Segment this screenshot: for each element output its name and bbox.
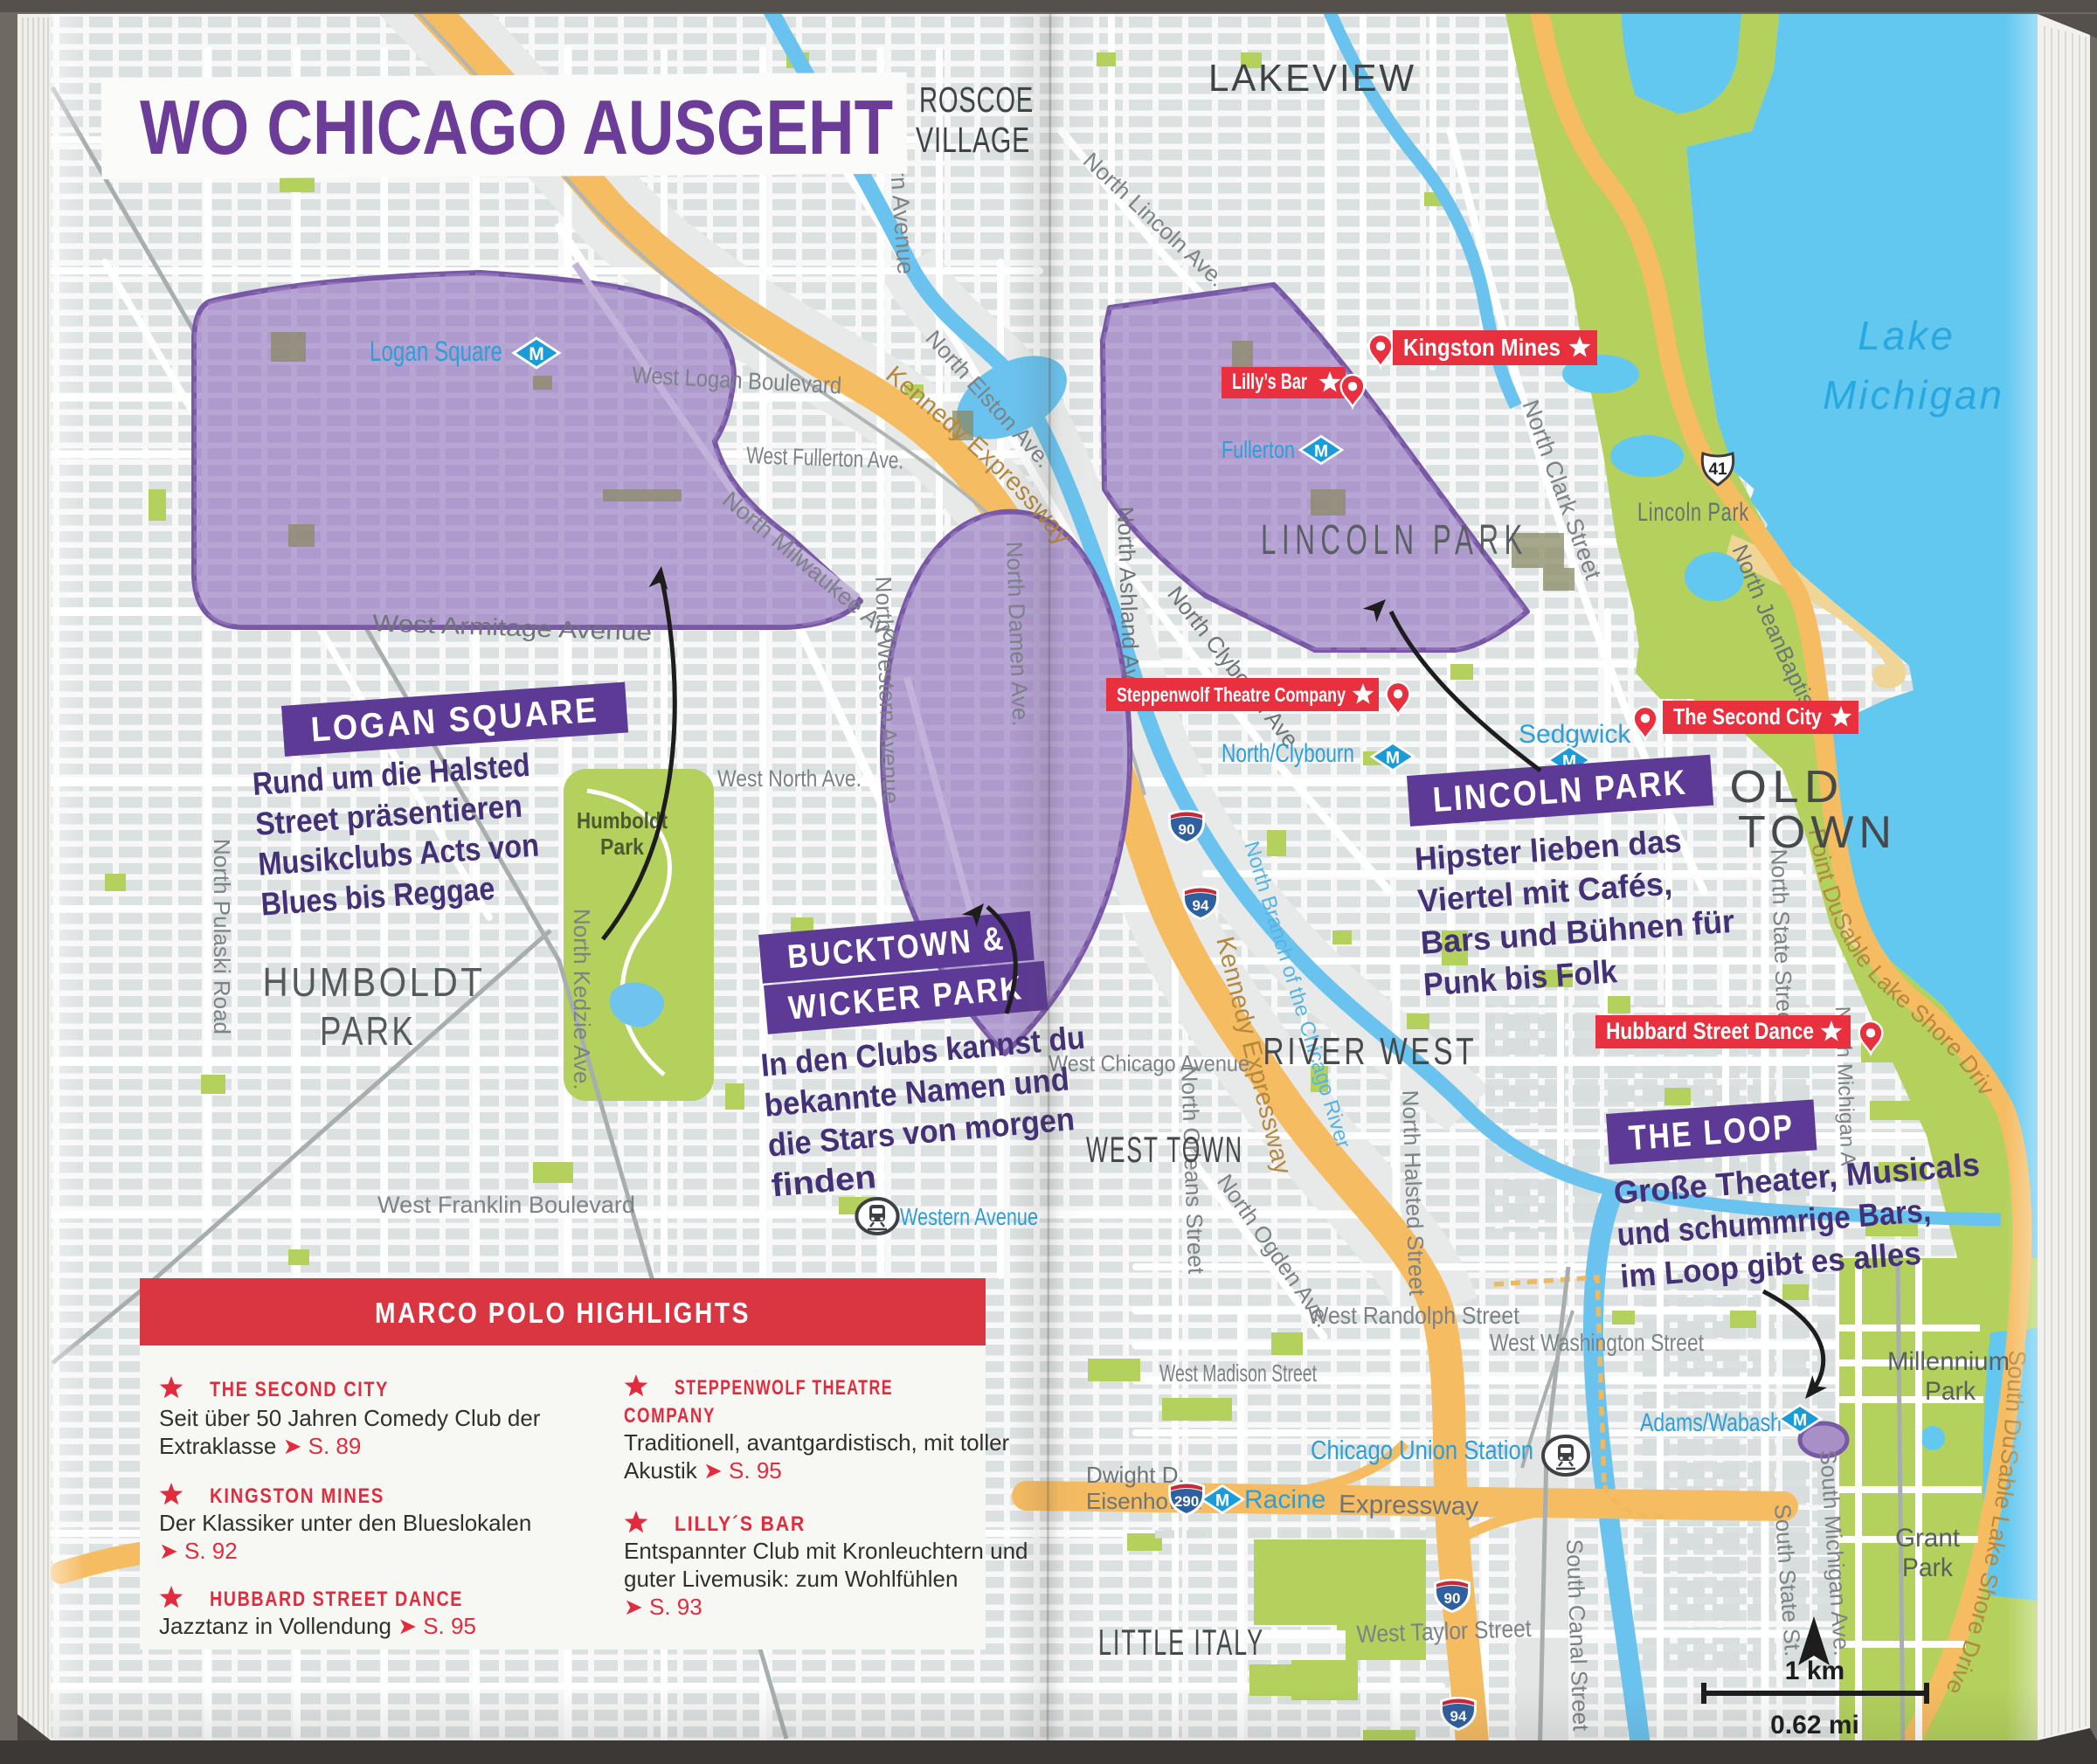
svg-text:M: M bbox=[1386, 749, 1400, 767]
svg-text:M: M bbox=[1215, 1491, 1229, 1510]
svg-text:LILLY´S BAR: LILLY´S BAR bbox=[675, 1512, 806, 1536]
svg-text:MARCO POLO HIGHLIGHTS: MARCO POLO HIGHLIGHTS bbox=[375, 1297, 751, 1329]
svg-text:➤ S. 93: ➤ S. 93 bbox=[624, 1594, 702, 1620]
svg-text:WO CHICAGO AUSGEHT: WO CHICAGO AUSGEHT bbox=[140, 84, 893, 170]
svg-text:OLD: OLD bbox=[1730, 762, 1844, 813]
svg-text:Racine: Racine bbox=[1244, 1485, 1325, 1514]
svg-text:Grant: Grant bbox=[1895, 1524, 1961, 1553]
svg-text:41: 41 bbox=[1708, 460, 1727, 479]
svg-text:North/Clybourn: North/Clybourn bbox=[1222, 739, 1354, 768]
svg-text:WEST TOWN: WEST TOWN bbox=[1086, 1129, 1243, 1170]
svg-text:94: 94 bbox=[1193, 897, 1209, 914]
svg-text:Jazztanz in Vollendung ➤ S. 95: Jazztanz in Vollendung ➤ S. 95 bbox=[159, 1613, 476, 1639]
svg-text:Sedgwick: Sedgwick bbox=[1519, 720, 1631, 749]
svg-text:Fullerton: Fullerton bbox=[1222, 436, 1295, 463]
svg-text:Hubbard Street Dance: Hubbard Street Dance bbox=[1606, 1018, 1814, 1044]
svg-text:HUMBOLDT: HUMBOLDT bbox=[263, 959, 486, 1005]
svg-text:Humboldt: Humboldt bbox=[577, 807, 668, 834]
svg-text:North Kedzie Ave.: North Kedzie Ave. bbox=[569, 909, 595, 1090]
svg-text:Logan Square: Logan Square bbox=[370, 336, 502, 367]
svg-text:Park: Park bbox=[600, 834, 644, 860]
svg-text:90: 90 bbox=[1444, 1590, 1461, 1607]
svg-text:Extraklasse ➤ S. 89: Extraklasse ➤ S. 89 bbox=[159, 1433, 361, 1459]
svg-text:Steppenwolf Theatre Company: Steppenwolf Theatre Company bbox=[1117, 683, 1346, 706]
svg-text:Dwight D.: Dwight D. bbox=[1086, 1462, 1185, 1488]
svg-text:guter Livemusik: zum Wohlfühle: guter Livemusik: zum Wohlfühlen bbox=[624, 1566, 958, 1592]
svg-text:West Fullerton Ave.: West Fullerton Ave. bbox=[746, 442, 904, 474]
svg-text:Millennium: Millennium bbox=[1887, 1347, 2010, 1376]
svg-text:RIVER WEST: RIVER WEST bbox=[1263, 1030, 1478, 1073]
svg-text:Seit über 50 Jahren Comedy Clu: Seit über 50 Jahren Comedy Club der bbox=[159, 1405, 541, 1431]
svg-text:Expressway: Expressway bbox=[1339, 1491, 1479, 1521]
svg-text:THE SECOND CITY: THE SECOND CITY bbox=[210, 1378, 389, 1401]
svg-text:West Washington Street: West Washington Street bbox=[1490, 1329, 1704, 1356]
svg-text:LINCOLN PARK: LINCOLN PARK bbox=[1261, 517, 1528, 564]
svg-text:M: M bbox=[1793, 1411, 1807, 1429]
svg-text:TOWN: TOWN bbox=[1738, 807, 1897, 858]
svg-text:Akustik ➤ S. 95: Akustik ➤ S. 95 bbox=[624, 1457, 782, 1484]
svg-text:LITTLE ITALY: LITTLE ITALY bbox=[1098, 1622, 1264, 1663]
svg-text:The Second City: The Second City bbox=[1673, 703, 1822, 730]
svg-text:Traditionell, avantgardistisch: Traditionell, avantgardistisch, mit toll… bbox=[624, 1429, 1010, 1456]
svg-text:Lilly’s Bar: Lilly’s Bar bbox=[1232, 370, 1307, 394]
svg-text:➤ S. 92: ➤ S. 92 bbox=[159, 1538, 238, 1564]
svg-text:Michigan: Michigan bbox=[1823, 372, 2004, 418]
svg-text:90: 90 bbox=[1179, 821, 1195, 838]
svg-text:Adams/Wabash: Adams/Wabash bbox=[1640, 1408, 1782, 1437]
svg-text:Kingston Mines: Kingston Mines bbox=[1403, 334, 1561, 361]
svg-text:Lincoln Park: Lincoln Park bbox=[1637, 498, 1749, 527]
svg-text:LAKEVIEW: LAKEVIEW bbox=[1208, 57, 1416, 100]
svg-text:Park: Park bbox=[1902, 1553, 1954, 1582]
svg-text:Lake: Lake bbox=[1858, 313, 1955, 358]
svg-text:West Madison Street: West Madison Street bbox=[1159, 1359, 1317, 1387]
svg-text:West North Ave.: West North Ave. bbox=[717, 765, 862, 792]
svg-text:Chicago Union Station: Chicago Union Station bbox=[1311, 1435, 1533, 1465]
svg-text:PARK: PARK bbox=[320, 1008, 416, 1054]
svg-text:STEPPENWOLF THEATRE: STEPPENWOLF THEATRE bbox=[675, 1376, 893, 1400]
svg-text:1 km: 1 km bbox=[1785, 1657, 1844, 1685]
svg-text:KINGSTON MINES: KINGSTON MINES bbox=[210, 1484, 384, 1508]
svg-text:M: M bbox=[529, 344, 544, 364]
svg-text:Der Klassiker unter den Bluesl: Der Klassiker unter den Blueslokalen bbox=[159, 1510, 531, 1536]
svg-text:Park: Park bbox=[1925, 1377, 1976, 1406]
svg-text:HUBBARD STREET DANCE: HUBBARD STREET DANCE bbox=[210, 1588, 463, 1611]
svg-text:Entspannter Club mit Kronleuch: Entspannter Club mit Kronleuchtern und bbox=[624, 1538, 1028, 1564]
svg-text:290: 290 bbox=[1174, 1493, 1199, 1510]
svg-text:M: M bbox=[1314, 442, 1328, 460]
svg-text:COMPANY: COMPANY bbox=[624, 1404, 716, 1428]
svg-text:West Franklin Boulevard: West Franklin Boulevard bbox=[377, 1192, 635, 1218]
svg-text:West Randolph Street: West Randolph Street bbox=[1308, 1302, 1519, 1329]
svg-text:North Pulaski Road: North Pulaski Road bbox=[209, 839, 235, 1034]
